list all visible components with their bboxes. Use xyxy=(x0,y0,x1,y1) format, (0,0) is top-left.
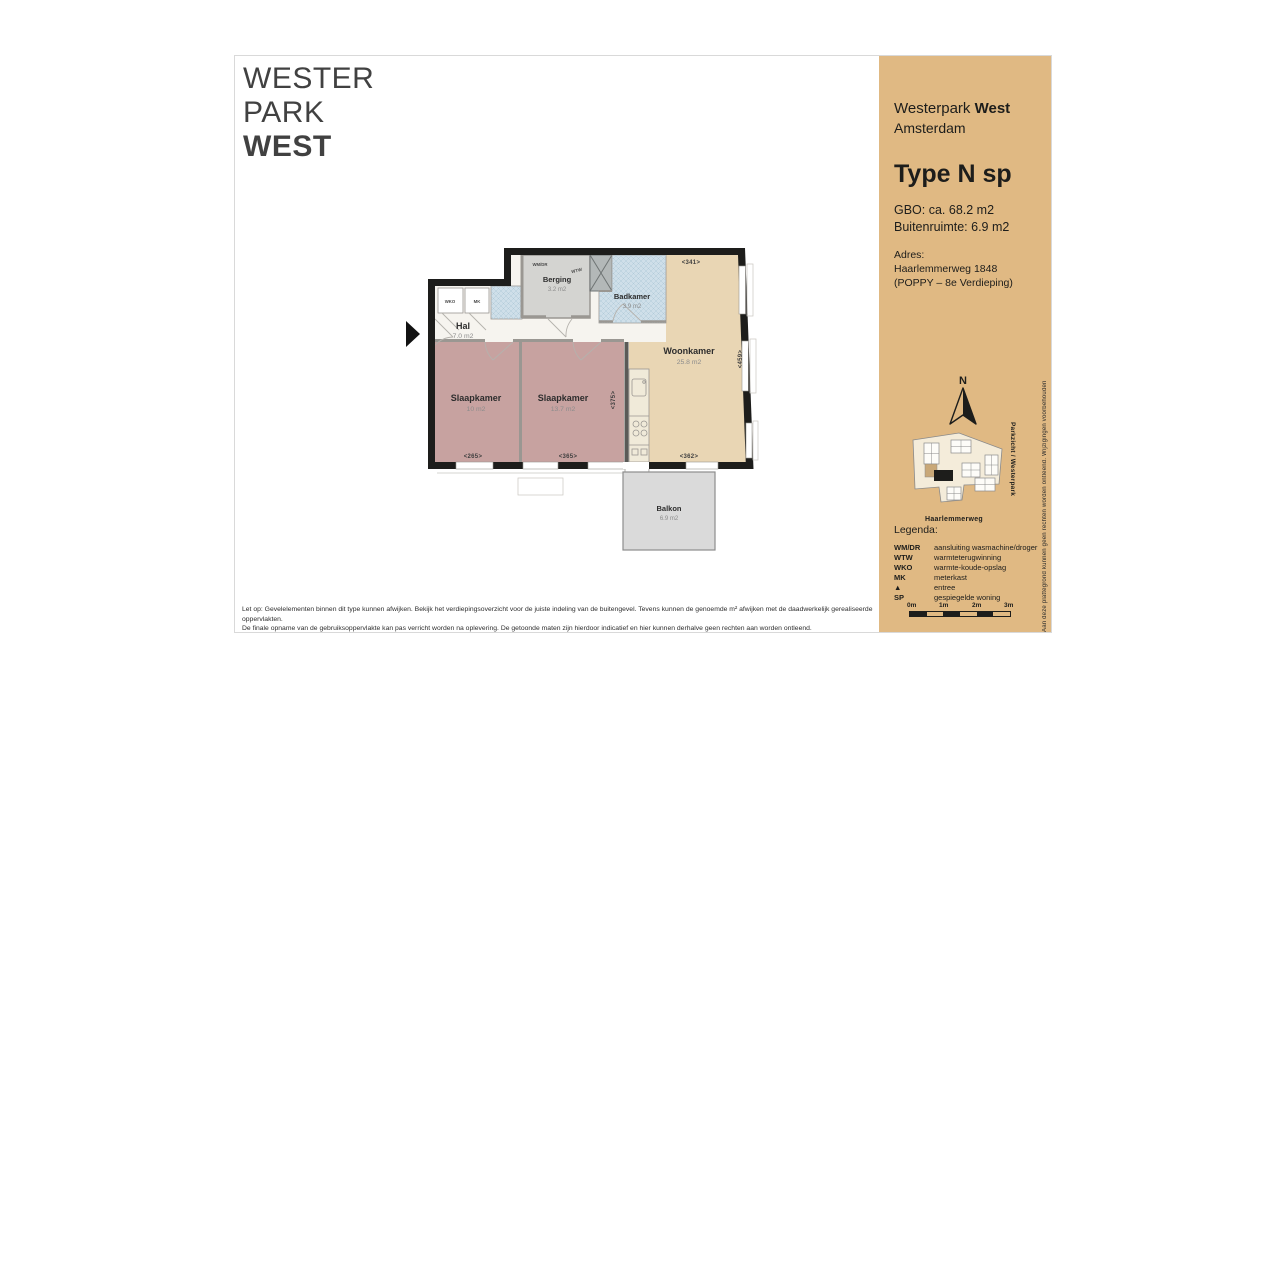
project-city: Amsterdam xyxy=(894,120,966,136)
label-mk: MK xyxy=(474,299,482,304)
entree-arrow-icon xyxy=(406,321,420,347)
disclaimer-line-2: De finale opname van de gebruiksoppervla… xyxy=(242,624,876,634)
legend-row-wko: WKO warmte-koude-opslag xyxy=(894,563,1037,573)
site-map xyxy=(901,428,1016,513)
logo-line-1: WESTER xyxy=(243,62,374,96)
logo-line-2: PARK xyxy=(243,96,374,130)
legend-list: WM/DR aansluiting wasmachine/droger WTW … xyxy=(894,543,1037,603)
legend-abbr: WKO xyxy=(894,563,934,573)
dim-right: <459> xyxy=(738,350,744,369)
legend-desc: warmteterugwinning xyxy=(934,553,1037,563)
label-balkon: Balkon xyxy=(656,504,681,513)
wet-cell xyxy=(491,286,522,319)
scale-3: 3m xyxy=(1004,602,1013,609)
park-side-label: Parkzicht / Westerpark xyxy=(1009,422,1016,496)
label-wmdr: WM/DR xyxy=(532,262,548,267)
kitchen-counter xyxy=(629,369,649,462)
scale-0: 0m xyxy=(907,602,916,609)
dim-bed1: <265> xyxy=(464,454,483,460)
address-line-1: Haarlemmerweg 1848 xyxy=(894,262,1013,276)
legend-title: Legenda: xyxy=(894,524,938,536)
dim-bed2: <365> xyxy=(559,454,578,460)
gbo-value: GBO: ca. 68.2 m2 xyxy=(894,203,994,217)
legend-row-mk: MK meterkast xyxy=(894,573,1037,583)
edge-disclaimer: Aan deze plattegrond kunnen geen rechten… xyxy=(1042,376,1048,632)
label-slaapkamer-2: Slaapkamer xyxy=(538,393,589,403)
project-name: Westerpark West xyxy=(894,100,1010,117)
legend-row-wmdr: WM/DR aansluiting wasmachine/droger xyxy=(894,543,1037,553)
scale-2: 2m xyxy=(972,602,981,609)
label-woonkamer: Woonkamer xyxy=(663,346,715,356)
floorplan-drawing: Hal 7.0 m2 Berging 3.2 m2 Badkamer 3.9 m… xyxy=(396,236,781,566)
buitenruimte-value: Buitenruimte: 6.9 m2 xyxy=(894,220,1009,234)
technical-shaft xyxy=(590,255,612,291)
label-wko: WKO xyxy=(445,299,456,304)
address-block: Adres: Haarlemmerweg 1848 (POPPY – 8e Ve… xyxy=(894,248,1013,290)
street-label: Haarlemmerweg xyxy=(879,516,1029,523)
label-slaapkamer-1-area: 10 m2 xyxy=(467,406,486,413)
unit-type-title: Type N sp xyxy=(894,160,1012,189)
scale-bar: 0m 1m 2m 3m xyxy=(909,602,1011,620)
dim-mid: <375> xyxy=(611,391,617,410)
disclaimer-line-1: Let op: Gevelelementen binnen dit type k… xyxy=(242,605,876,624)
label-balkon-area: 6.9 m2 xyxy=(660,516,679,522)
label-badkamer: Badkamer xyxy=(614,292,650,301)
legend-desc: aansluiting wasmachine/droger xyxy=(934,543,1037,553)
entree-triangle-icon: ▲ xyxy=(894,583,934,593)
project-name-regular: Westerpark xyxy=(894,100,975,117)
address-line-2: (POPPY – 8e Verdieping) xyxy=(894,276,1013,290)
legend-row-wtw: WTW warmteterugwinning xyxy=(894,553,1037,563)
label-hal-area: 7.0 m2 xyxy=(453,333,474,340)
north-compass-icon: N xyxy=(945,372,981,428)
legend-desc: warmte-koude-opslag xyxy=(934,563,1037,573)
label-badkamer-area: 3.9 m2 xyxy=(623,304,642,310)
dim-top: <341> xyxy=(682,260,701,266)
page-canvas: WESTER PARK WEST xyxy=(0,0,1280,1280)
scale-labels: 0m 1m 2m 3m xyxy=(909,602,1011,611)
site-map-highlighted-unit xyxy=(934,470,953,481)
label-berging: Berging xyxy=(543,275,572,284)
disclaimer: Let op: Gevelelementen binnen dit type k… xyxy=(242,605,876,634)
legend-abbr: WM/DR xyxy=(894,543,934,553)
legend-desc: meterkast xyxy=(934,573,1037,583)
project-name-bold: West xyxy=(975,100,1011,117)
label-hal: Hal xyxy=(456,321,470,331)
brand-logo: WESTER PARK WEST xyxy=(243,62,374,164)
scale-1: 1m xyxy=(939,602,948,609)
legend-abbr: WTW xyxy=(894,553,934,563)
label-slaapkamer-1: Slaapkamer xyxy=(451,393,502,403)
compass-n: N xyxy=(959,375,967,387)
scale-bar-segments xyxy=(909,611,1011,617)
info-sidebar: Westerpark West Amsterdam Type N sp GBO:… xyxy=(879,56,1051,632)
legend-abbr: MK xyxy=(894,573,934,583)
dim-bottom: <362> xyxy=(680,454,699,460)
address-label: Adres: xyxy=(894,248,1013,262)
label-slaapkamer-2-area: 13.7 m2 xyxy=(551,406,576,413)
legend-desc: entree xyxy=(934,583,1037,593)
document-sheet: WESTER PARK WEST xyxy=(234,55,1052,633)
logo-line-3: WEST xyxy=(243,130,374,164)
label-berging-area: 3.2 m2 xyxy=(548,287,567,293)
label-woonkamer-area: 25.8 m2 xyxy=(677,359,702,366)
legend-row-entree: ▲ entree xyxy=(894,583,1037,593)
